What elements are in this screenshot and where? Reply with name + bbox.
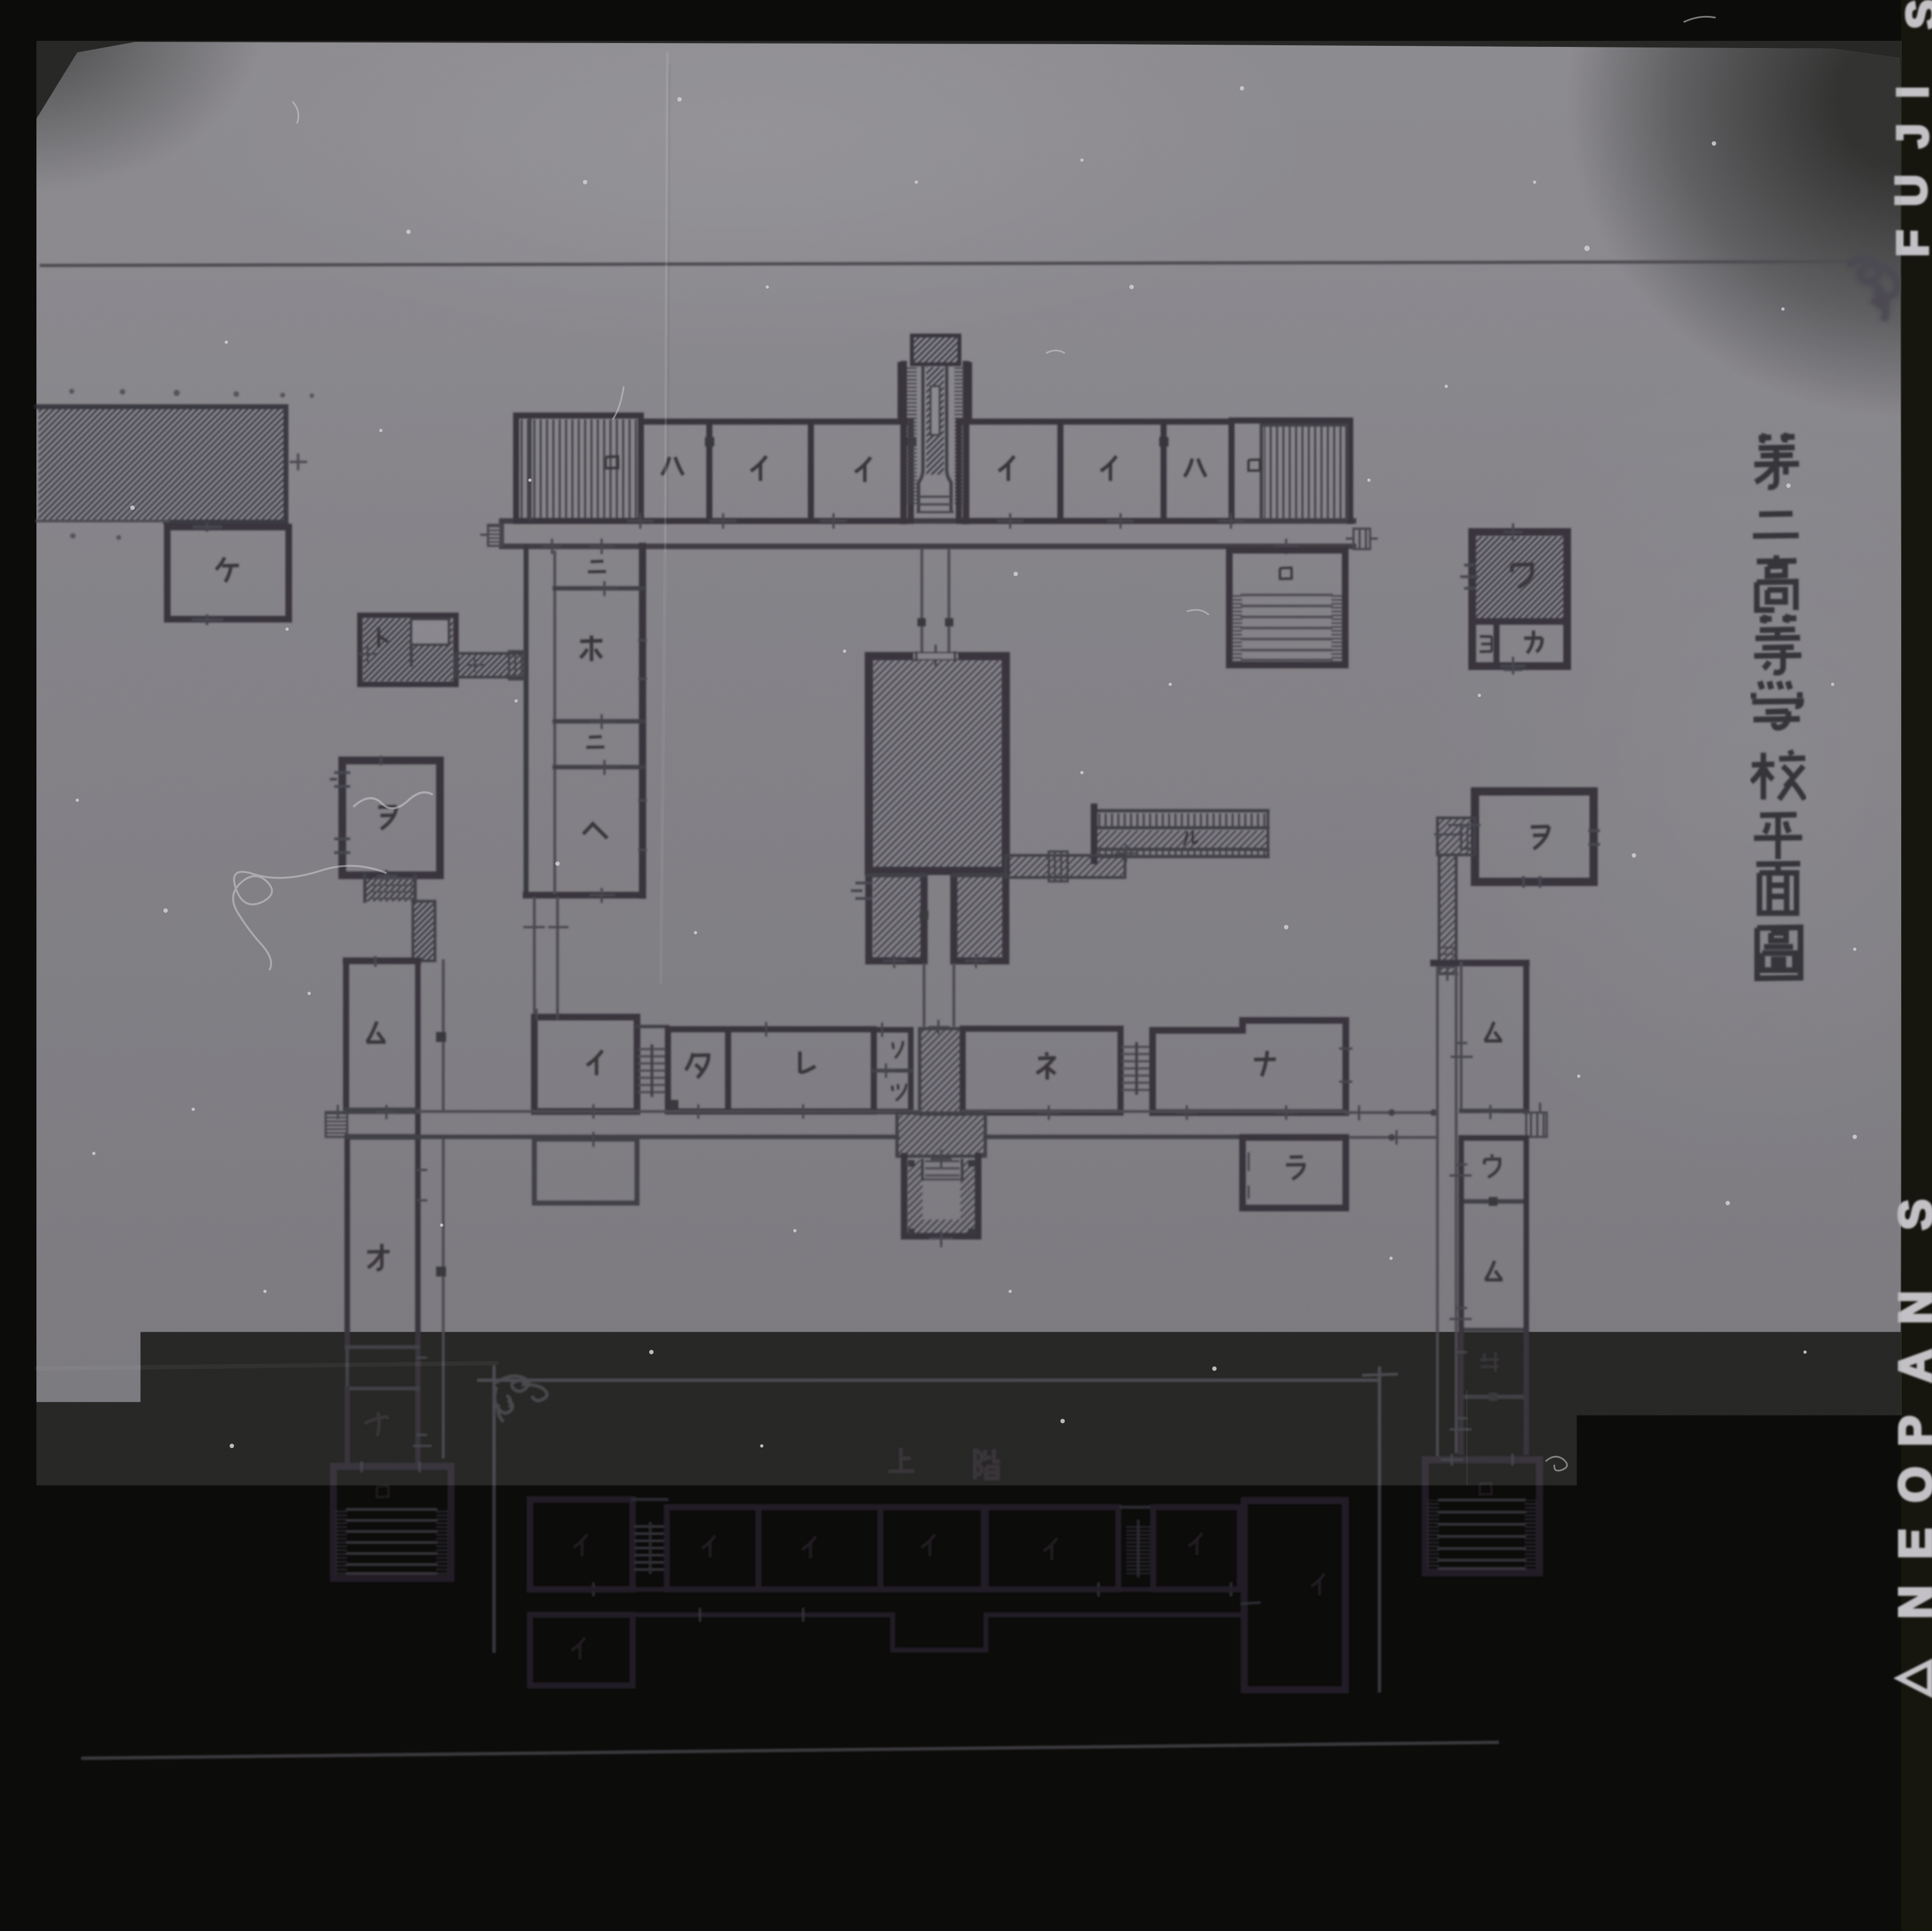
svg-text:S: S (1897, 0, 1932, 29)
